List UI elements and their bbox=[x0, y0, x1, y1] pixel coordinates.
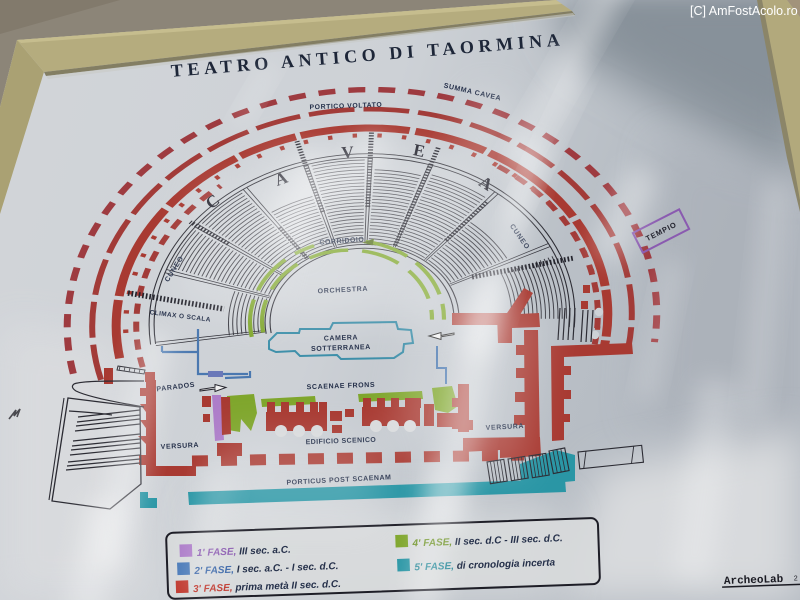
svg-text:2: 2 bbox=[794, 575, 798, 582]
svg-text:CAMERA: CAMERA bbox=[324, 334, 359, 342]
svg-text:[C] AmFostAcolo.ro: [C] AmFostAcolo.ro bbox=[690, 4, 798, 18]
